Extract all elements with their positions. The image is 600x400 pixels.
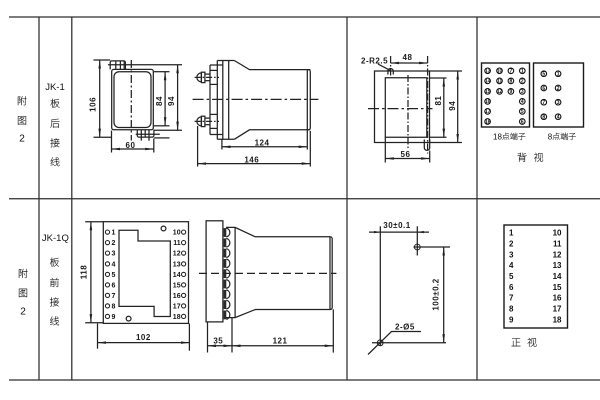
svg-text:1: 1 bbox=[521, 69, 524, 75]
svg-text:13: 13 bbox=[553, 261, 562, 270]
svg-text:18: 18 bbox=[553, 315, 562, 324]
svg-text:7: 7 bbox=[112, 293, 116, 300]
svg-text:18: 18 bbox=[485, 119, 491, 125]
svg-text:30±0.1: 30±0.1 bbox=[383, 221, 410, 230]
svg-text:9: 9 bbox=[112, 314, 116, 321]
svg-text:2: 2 bbox=[509, 240, 514, 249]
svg-text:102: 102 bbox=[136, 333, 151, 342]
svg-text:94: 94 bbox=[167, 96, 176, 106]
svg-text:2-R2.5: 2-R2.5 bbox=[361, 57, 388, 66]
svg-text:16: 16 bbox=[485, 99, 491, 105]
svg-text:9: 9 bbox=[510, 89, 513, 95]
svg-text:JK-1Q: JK-1Q bbox=[42, 233, 69, 244]
svg-text:7: 7 bbox=[510, 69, 513, 75]
svg-text:3: 3 bbox=[557, 100, 560, 106]
svg-text:12: 12 bbox=[553, 250, 562, 259]
svg-text:35: 35 bbox=[213, 336, 223, 345]
svg-text:48: 48 bbox=[403, 53, 413, 62]
svg-text:11: 11 bbox=[497, 79, 503, 85]
svg-text:16: 16 bbox=[553, 294, 562, 303]
svg-text:12: 12 bbox=[497, 89, 503, 95]
svg-text:15: 15 bbox=[553, 283, 562, 292]
svg-text:8: 8 bbox=[548, 132, 553, 141]
svg-text:3: 3 bbox=[112, 251, 116, 258]
svg-text:12: 12 bbox=[173, 251, 181, 258]
svg-text:121: 121 bbox=[273, 336, 288, 345]
svg-text:8: 8 bbox=[509, 305, 514, 314]
svg-text:2: 2 bbox=[112, 240, 116, 247]
svg-text:56: 56 bbox=[401, 150, 411, 159]
svg-text:3: 3 bbox=[509, 250, 514, 259]
svg-text:1: 1 bbox=[112, 230, 116, 237]
svg-text:6: 6 bbox=[542, 86, 545, 92]
svg-text:5: 5 bbox=[112, 272, 116, 279]
svg-text:118: 118 bbox=[79, 265, 88, 279]
svg-text:94: 94 bbox=[448, 101, 457, 111]
svg-text:5: 5 bbox=[509, 272, 514, 281]
svg-text:14: 14 bbox=[173, 272, 181, 279]
svg-text:11: 11 bbox=[553, 240, 562, 249]
svg-text:18: 18 bbox=[493, 132, 502, 141]
svg-text:9: 9 bbox=[509, 315, 514, 324]
svg-text:8: 8 bbox=[112, 303, 116, 310]
svg-text:106: 106 bbox=[88, 97, 97, 112]
svg-text:14: 14 bbox=[553, 272, 562, 281]
svg-text:10: 10 bbox=[553, 229, 562, 238]
svg-text:14: 14 bbox=[485, 79, 491, 85]
svg-text:10: 10 bbox=[497, 69, 503, 75]
svg-text:4: 4 bbox=[112, 261, 116, 268]
svg-text:124: 124 bbox=[255, 139, 270, 148]
svg-text:2: 2 bbox=[20, 307, 26, 318]
svg-text:84: 84 bbox=[155, 96, 164, 106]
svg-text:17: 17 bbox=[553, 305, 562, 314]
svg-text:6: 6 bbox=[509, 283, 514, 292]
svg-text:10: 10 bbox=[173, 230, 181, 237]
svg-text:6: 6 bbox=[521, 119, 524, 125]
svg-text:3: 3 bbox=[521, 89, 524, 95]
svg-text:146: 146 bbox=[244, 155, 259, 164]
svg-text:11: 11 bbox=[173, 240, 181, 247]
svg-text:8: 8 bbox=[510, 79, 513, 85]
svg-text:2: 2 bbox=[19, 134, 25, 145]
svg-text:7: 7 bbox=[509, 294, 514, 303]
svg-text:2-Ø5: 2-Ø5 bbox=[395, 322, 415, 331]
svg-text:5: 5 bbox=[542, 72, 545, 78]
svg-text:4: 4 bbox=[557, 115, 560, 121]
svg-text:7: 7 bbox=[542, 100, 545, 106]
svg-text:13: 13 bbox=[485, 69, 491, 75]
svg-text:8: 8 bbox=[542, 115, 545, 121]
svg-text:1: 1 bbox=[509, 229, 514, 238]
svg-text:17: 17 bbox=[485, 109, 491, 115]
svg-text:13: 13 bbox=[173, 261, 181, 268]
svg-text:4: 4 bbox=[521, 99, 524, 105]
svg-text:60: 60 bbox=[126, 141, 136, 150]
svg-text:2: 2 bbox=[521, 79, 524, 85]
svg-text:1: 1 bbox=[557, 72, 560, 78]
svg-text:15: 15 bbox=[173, 282, 181, 289]
svg-text:2: 2 bbox=[557, 86, 560, 92]
svg-text:17: 17 bbox=[173, 303, 181, 310]
svg-text:15: 15 bbox=[485, 89, 491, 95]
svg-text:81: 81 bbox=[434, 96, 443, 106]
svg-text:16: 16 bbox=[173, 293, 181, 300]
svg-text:18: 18 bbox=[173, 314, 181, 321]
svg-text:5: 5 bbox=[521, 109, 524, 115]
svg-text:4: 4 bbox=[509, 261, 514, 270]
svg-text:JK-1: JK-1 bbox=[45, 82, 65, 93]
svg-text:100±0.2: 100±0.2 bbox=[431, 278, 440, 310]
svg-text:6: 6 bbox=[112, 282, 116, 289]
